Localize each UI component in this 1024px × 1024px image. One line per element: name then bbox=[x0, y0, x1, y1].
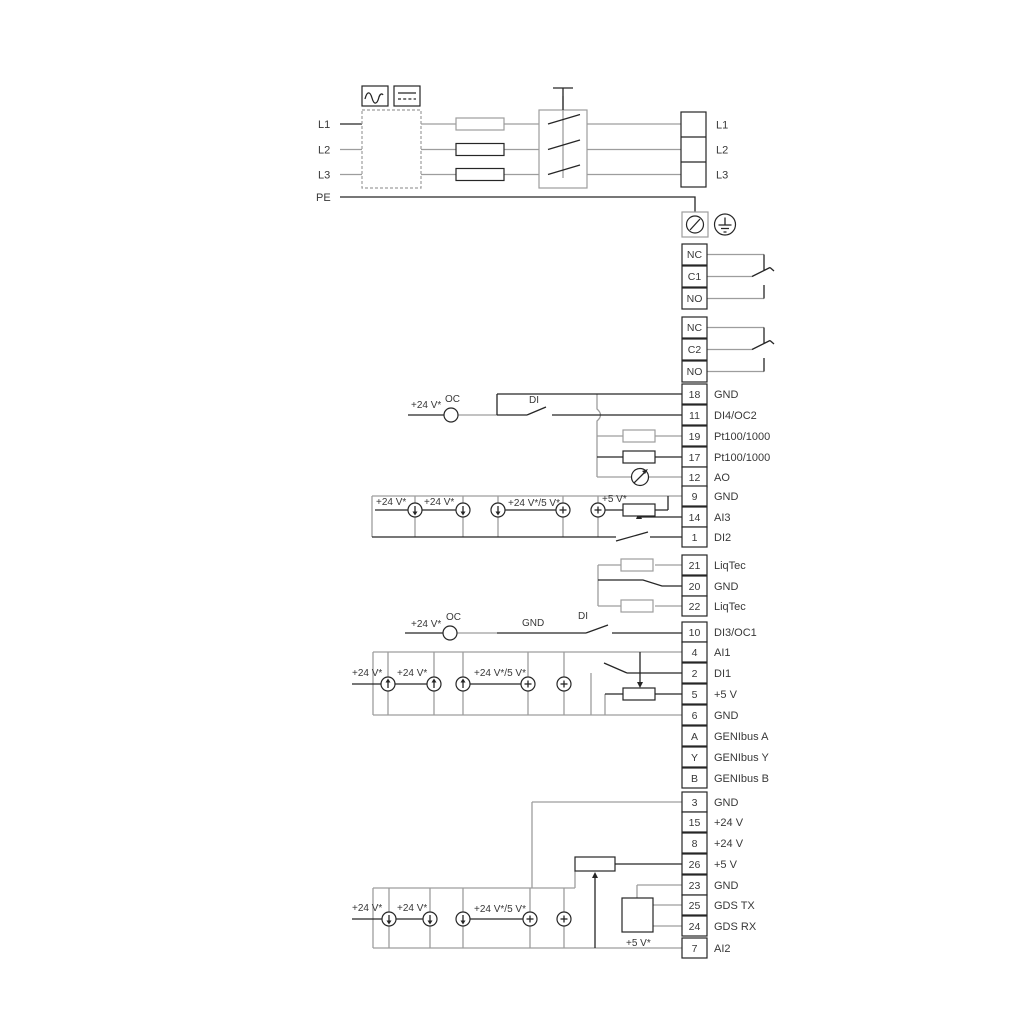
wiring-diagram: L1 L2 L3 PE L1 L2 L3 bbox=[0, 0, 1024, 1024]
terminal-label: +5 V bbox=[714, 689, 738, 701]
ai3-cluster: +24 V* +24 V* +24 V*/5 V* +5 V* bbox=[372, 494, 682, 541]
terminal-row: 22 LiqTec bbox=[682, 596, 746, 616]
liqtec-resistor-21 bbox=[621, 559, 653, 571]
terminal-number: 26 bbox=[689, 859, 701, 871]
phase-label-l3: L3 bbox=[318, 170, 330, 182]
phase-label-pe: PE bbox=[316, 192, 331, 204]
terminal-number: 5 bbox=[692, 689, 698, 701]
terminal-row: 17 Pt100/1000 bbox=[682, 447, 770, 467]
annotation-24v: +24 V* bbox=[411, 400, 441, 411]
terminal-row: 24 GDS RX bbox=[682, 916, 757, 936]
filter-dashed-box bbox=[362, 110, 421, 188]
annotation-24v: +24 V* bbox=[376, 497, 406, 508]
terminal-number: 7 bbox=[692, 943, 698, 955]
relay2-wires bbox=[707, 328, 764, 372]
terminal-label: DI2 bbox=[714, 532, 731, 544]
relay-1: NC C1 NO bbox=[682, 244, 774, 309]
relay2-contact bbox=[752, 328, 774, 372]
pt100-resistor-17 bbox=[623, 451, 655, 463]
main-switch bbox=[539, 88, 587, 188]
terminal-number: 22 bbox=[689, 601, 701, 613]
ai2-wiper-arrow bbox=[592, 872, 598, 878]
terminal-strip: 18 GND 11 DI4/OC2 19 Pt100/1000 17 Pt100… bbox=[682, 384, 770, 958]
annotation-oc: OC bbox=[445, 394, 460, 405]
ai2-potentiometer bbox=[575, 857, 615, 871]
annotation-24v-5v: +24 V*/5 V* bbox=[474, 904, 526, 915]
dc-symbol-box bbox=[394, 86, 420, 106]
terminal-number: 23 bbox=[689, 880, 701, 892]
terminal-label: Pt100/1000 bbox=[714, 431, 770, 443]
terminal-label: +24 V bbox=[714, 838, 744, 850]
relay2-c2-label: C2 bbox=[688, 344, 702, 356]
terminal-block-outline bbox=[681, 112, 706, 187]
terminal-label: GND bbox=[714, 491, 739, 503]
annotation-24v: +24 V* bbox=[397, 668, 427, 679]
out-label-l1: L1 bbox=[716, 120, 728, 132]
mains-terminal-block: L1 L2 L3 bbox=[681, 112, 728, 187]
terminal-label: GND bbox=[714, 389, 739, 401]
terminal-row: 3 GND bbox=[682, 792, 739, 812]
terminal-label: GDS RX bbox=[714, 921, 757, 933]
relay2-no-label: NO bbox=[687, 366, 703, 378]
terminal-number: 12 bbox=[689, 472, 701, 484]
terminal-number: B bbox=[691, 773, 698, 785]
di3-oc1-section: +24 V* OC GND DI bbox=[405, 611, 682, 640]
terminal-row: 10 DI3/OC1 bbox=[682, 622, 757, 642]
ai3-potentiometer bbox=[623, 504, 655, 516]
terminal-row: 20 GND bbox=[682, 576, 739, 596]
terminal-label: GND bbox=[714, 797, 739, 809]
terminal-row: 18 GND bbox=[682, 384, 739, 404]
terminal-row: 15 +24 V bbox=[682, 812, 744, 832]
terminal-label: AO bbox=[714, 472, 730, 484]
terminal-row: A GENIbus A bbox=[682, 726, 769, 746]
ai1-potentiometer bbox=[623, 688, 655, 700]
ai1-cluster: +24 V* +24 V* +24 V*/5 V* bbox=[352, 652, 682, 715]
terminal-label: DI4/OC2 bbox=[714, 410, 757, 422]
relay-2: NC C2 NO bbox=[682, 317, 774, 382]
annotation-oc: OC bbox=[446, 612, 461, 623]
terminal-row: 14 AI3 bbox=[682, 507, 731, 527]
terminal-number: 10 bbox=[689, 627, 701, 639]
terminal-number: 21 bbox=[689, 560, 701, 572]
pe-ground-terminal bbox=[682, 212, 736, 237]
terminal-number: 15 bbox=[689, 817, 701, 829]
terminal-number: 11 bbox=[689, 410, 700, 422]
ao-meter-icon bbox=[632, 469, 649, 486]
terminal-number: 6 bbox=[692, 710, 698, 722]
relay1-wires bbox=[707, 255, 764, 299]
terminal-label: LiqTec bbox=[714, 601, 746, 613]
liqtec-section bbox=[598, 559, 682, 612]
out-label-l2: L2 bbox=[716, 145, 728, 157]
terminal-label: GENIbus A bbox=[714, 731, 769, 743]
annotation-24v: +24 V* bbox=[397, 903, 427, 914]
power-input-section: L1 L2 L3 PE L1 L2 L3 bbox=[316, 86, 736, 237]
terminal-row: 5 +5 V bbox=[682, 684, 738, 704]
annotation-24v: +24 V* bbox=[411, 619, 441, 630]
terminal-label: DI1 bbox=[714, 668, 731, 680]
terminal-row: 23 GND bbox=[682, 875, 739, 895]
terminal-number: 25 bbox=[689, 900, 701, 912]
terminal-label: AI1 bbox=[714, 647, 731, 659]
terminal-row: Y GENIbus Y bbox=[682, 747, 769, 767]
terminal-number: 17 bbox=[689, 452, 701, 464]
relay1-c1-label: C1 bbox=[688, 271, 702, 283]
annotation-gnd: GND bbox=[522, 618, 544, 629]
fuse-symbol-l1 bbox=[456, 118, 504, 130]
annotation-24v: +24 V* bbox=[352, 668, 382, 679]
terminal-number: 9 bbox=[692, 491, 698, 503]
terminal-row: 8 +24 V bbox=[682, 833, 744, 853]
terminal-label: +5 V bbox=[714, 859, 738, 871]
annotation-24v-5v: +24 V*/5 V* bbox=[508, 498, 560, 509]
terminal-number: 1 bbox=[692, 532, 698, 544]
relay1-nc-label: NC bbox=[687, 249, 703, 261]
terminal-number: Y bbox=[691, 752, 698, 764]
wiring-diagram-page: L1 L2 L3 PE L1 L2 L3 bbox=[0, 0, 1024, 1024]
terminal-number: 8 bbox=[692, 838, 698, 850]
terminal-row: 2 DI1 bbox=[682, 663, 731, 683]
terminal-row: 4 AI1 bbox=[682, 642, 731, 662]
terminal-row: 25 GDS TX bbox=[682, 895, 755, 915]
phase-label-l2: L2 bbox=[318, 145, 330, 157]
terminal-label: AI3 bbox=[714, 512, 731, 524]
terminal-row: 12 AO bbox=[682, 467, 730, 487]
terminal-row: 1 DI2 bbox=[682, 527, 731, 547]
phase-label-l1: L1 bbox=[318, 119, 330, 131]
terminal-label: GDS TX bbox=[714, 900, 755, 912]
terminal-row: 19 Pt100/1000 bbox=[682, 426, 770, 446]
terminal-number: A bbox=[691, 731, 698, 743]
annotation-24v: +24 V* bbox=[424, 497, 454, 508]
annotation-di: DI bbox=[529, 395, 539, 406]
switch-handle bbox=[553, 88, 573, 110]
pt100-ao-section bbox=[597, 430, 682, 486]
terminal-row: 9 GND bbox=[682, 486, 739, 506]
terminal-row: B GENIbus B bbox=[682, 768, 769, 788]
terminal-label: AI2 bbox=[714, 943, 731, 955]
terminal-number: 3 bbox=[692, 797, 698, 809]
gds-sensor-box bbox=[622, 898, 653, 932]
terminal-number: 24 bbox=[689, 921, 701, 933]
annotation-24v: +24 V* bbox=[352, 903, 382, 914]
terminal-label: GENIbus Y bbox=[714, 752, 769, 764]
annotation-di: DI bbox=[578, 611, 588, 622]
annotation-5v: +5 V* bbox=[626, 938, 651, 949]
terminal-number: 4 bbox=[692, 647, 698, 659]
annotation-5v: +5 V* bbox=[602, 494, 627, 505]
relay1-no-label: NO bbox=[687, 293, 703, 305]
liqtec-resistor-22 bbox=[621, 600, 653, 612]
terminal-row: 26 +5 V bbox=[682, 854, 738, 874]
pt100-resistor-19 bbox=[623, 430, 655, 442]
terminal-number: 14 bbox=[689, 512, 701, 524]
di4-wiring-gray bbox=[458, 394, 601, 477]
fuse-symbol-l2 bbox=[456, 144, 504, 156]
fuse-symbol-l3 bbox=[456, 169, 504, 181]
terminal-label: DI3/OC1 bbox=[714, 627, 757, 639]
terminal-label: Pt100/1000 bbox=[714, 452, 770, 464]
terminal-row: 6 GND bbox=[682, 705, 739, 725]
ai2-gds-section: +24 V* +24 V* +24 V*/5 V* +5 V* bbox=[352, 802, 682, 949]
terminal-label: GND bbox=[714, 710, 739, 722]
annotation-24v-5v: +24 V*/5 V* bbox=[474, 668, 526, 679]
ai1-wiper-arrow bbox=[637, 682, 643, 688]
terminal-label: GENIbus B bbox=[714, 773, 769, 785]
terminal-row: 11 DI4/OC2 bbox=[682, 405, 757, 425]
terminal-number: 2 bbox=[692, 668, 698, 680]
out-label-l3: L3 bbox=[716, 170, 728, 182]
terminal-label: GND bbox=[714, 581, 739, 593]
terminal-number: 20 bbox=[689, 581, 701, 593]
terminal-row: 7 AI2 bbox=[682, 938, 731, 958]
terminal-number: 18 bbox=[689, 389, 701, 401]
terminal-number: 19 bbox=[689, 431, 701, 443]
terminal-label: GND bbox=[714, 880, 739, 892]
relay2-nc-label: NC bbox=[687, 322, 703, 334]
relay1-contact bbox=[752, 255, 774, 299]
terminal-row: 21 LiqTec bbox=[682, 555, 746, 575]
terminal-label: LiqTec bbox=[714, 560, 746, 572]
terminal-label: +24 V bbox=[714, 817, 744, 829]
liqtec-wiring-black bbox=[598, 580, 682, 586]
